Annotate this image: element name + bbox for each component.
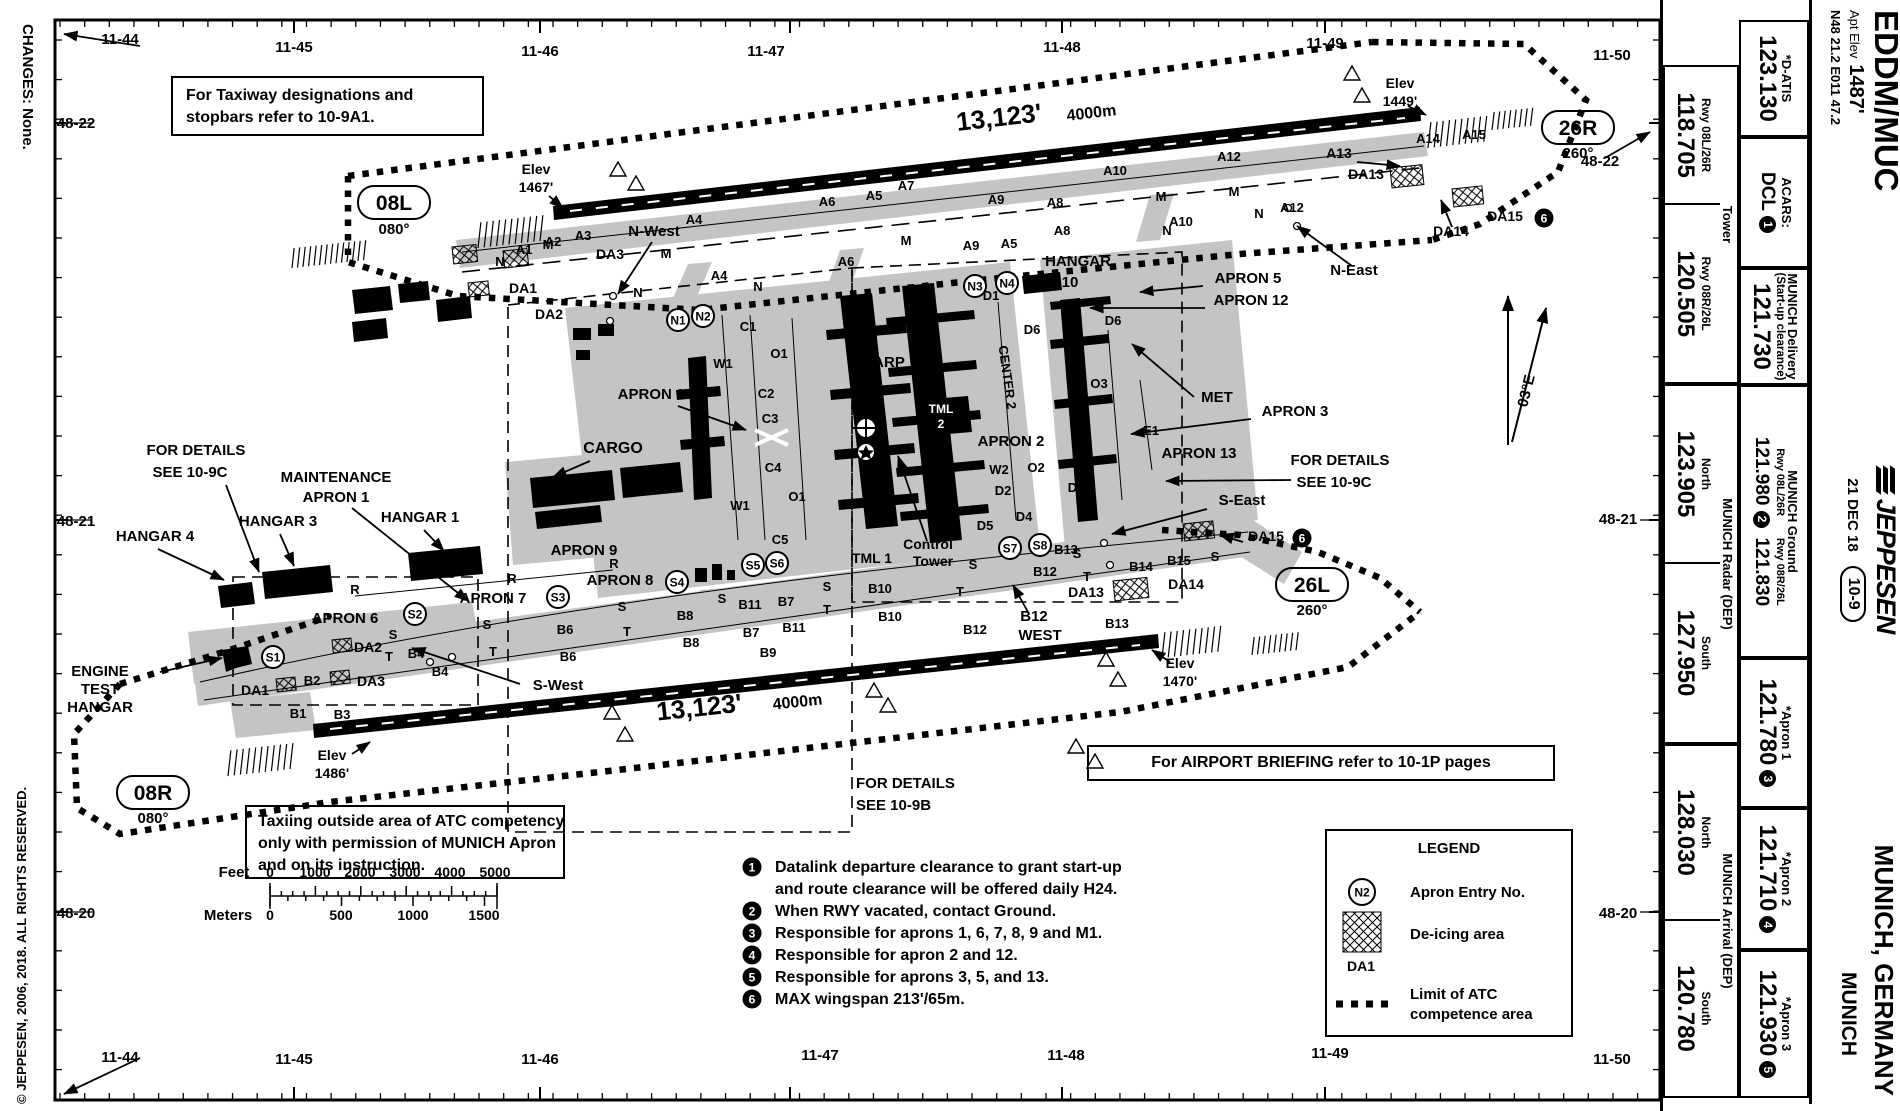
map-label: N — [1162, 223, 1171, 238]
map-label: A5 — [866, 188, 883, 203]
legend-deicing-sample — [1343, 912, 1381, 952]
map-label: B2 — [304, 673, 321, 688]
apron-entry-s6: S6 — [770, 557, 785, 571]
map-label: Elev — [318, 747, 347, 763]
freq-sublabel: North — [1700, 458, 1714, 490]
freq-label: ACARS: — [1780, 177, 1793, 228]
map-label: 4000m — [772, 691, 823, 713]
airport-diagram: N1N2N3N4S1S2S3S4S5S6S7S8N2 66 1Datalink … — [0, 0, 1660, 1111]
map-label: 1470' — [1163, 673, 1197, 689]
map-label: 10 — [1062, 274, 1079, 291]
brand-block: JEPPESEN 21 DEC 18 10-9 — [1840, 385, 1900, 715]
apron-entry-n2: N2 — [695, 310, 711, 324]
apt-elev-label: Apt Elev — [1847, 10, 1862, 58]
map-label: 3000 — [389, 864, 420, 880]
map-label: A9 — [988, 192, 1005, 207]
map-label: B4 — [432, 664, 449, 679]
chart-note-line: Datalink departure clearance to grant st… — [775, 859, 1122, 876]
map-label: APRON 1 — [303, 489, 370, 506]
freq-value: 128.030 — [1672, 789, 1700, 876]
map-label: HANGAR 3 — [239, 513, 317, 530]
map-label: S-East — [1219, 492, 1266, 509]
apron-entry-s7: S7 — [1003, 542, 1018, 556]
freq-sublabel: Rwy 08R/26L — [1700, 257, 1714, 331]
freq-cell-munich-delivery: MUNICH Delivery(Start-up clearance)121.7… — [1739, 268, 1809, 385]
freq-group-label: MUNICH Radar (DEP) — [1720, 386, 1734, 742]
apt-elev-value: 1487' — [1845, 64, 1867, 113]
map-label: DA3 — [596, 246, 624, 262]
freq-value: 118.705 — [1672, 92, 1700, 177]
chart-note-line: Responsible for aprons 1, 6, 7, 8, 9 and… — [775, 925, 1102, 942]
map-label: MET — [1201, 389, 1233, 406]
map-label: 03°E — [1514, 373, 1538, 409]
freq-cell--apron-2: *Apron 2121.7104 — [1739, 808, 1809, 950]
airport-coordinates: N48 21.2 E011 47.2 — [1828, 10, 1843, 275]
map-label: De-icing area — [1410, 926, 1505, 943]
spacer — [1739, 0, 1809, 20]
map-label: Meters — [204, 907, 252, 924]
map-label: only with permission of MUNICH Apron — [258, 835, 556, 852]
map-label: T — [623, 624, 631, 639]
map-label: B6 — [560, 649, 577, 664]
freq-value: 121.7104 — [1755, 825, 1780, 934]
map-label: S — [718, 591, 727, 606]
map-label: 4000m — [1066, 102, 1117, 125]
map-label: 11-44 — [101, 31, 139, 48]
map-label: B12 — [1020, 608, 1048, 625]
map-label: APRON 12 — [1213, 292, 1288, 309]
map-label: 48-21 — [57, 513, 95, 530]
map-label: FOR DETAILS — [1291, 452, 1390, 469]
map-label: C1 — [740, 319, 757, 334]
map-label: B8 — [683, 635, 700, 650]
map-label: HANGAR 1 — [381, 509, 459, 526]
map-label: W2 — [989, 462, 1009, 477]
map-label: competence area — [1410, 1006, 1533, 1023]
map-label: S — [823, 579, 832, 594]
map-label: S — [389, 627, 398, 642]
map-label: S — [969, 557, 978, 572]
map-label: Feet — [219, 864, 250, 881]
freq-group-munich-arrival-dep-: MUNICH Arrival (DEP)North128.030South120… — [1663, 744, 1739, 1098]
map-label: 2 — [938, 417, 945, 431]
map-label: B10 — [878, 609, 902, 624]
note-badge-6: 6 — [749, 992, 756, 1006]
freq-cell--apron-1: *Apron 1121.7803 — [1739, 658, 1809, 808]
map-label: N-West — [628, 223, 679, 240]
freq-pair: Rwy 08L/26R121.9802 — [1749, 437, 1786, 528]
jeppesen-airport-chart-page: { "margin": { "changes": "CHANGES: None.… — [0, 0, 1900, 1111]
map-label: APRON 2 — [978, 433, 1045, 450]
map-label: A2 — [545, 234, 562, 249]
map-label: D6 — [1024, 322, 1041, 337]
map-label: 11-48 — [1047, 1047, 1085, 1064]
map-label: 260° — [1562, 145, 1593, 162]
map-label: APRON 7 — [460, 590, 527, 607]
map-label: MAINTENANCE — [281, 469, 392, 486]
freq-value: 121.9305 — [1755, 970, 1780, 1079]
map-label: R — [507, 571, 517, 586]
map-label: B11 — [782, 620, 805, 635]
freq-cell-rwy-08r-26l: Rwy 08R/26L120.505 — [1665, 203, 1720, 382]
map-label: A6 — [819, 194, 836, 209]
map-label: A10 — [1103, 163, 1127, 178]
map-label: APRON 8 — [587, 572, 654, 589]
freq-value: 120.505 — [1672, 250, 1700, 337]
freq-label: *Apron 1 — [1780, 706, 1793, 760]
map-label: TML — [929, 402, 954, 416]
map-label: APRON 3 — [1262, 403, 1329, 420]
map-label: DA2 — [535, 306, 563, 322]
apron-entry-s8: S8 — [1033, 539, 1048, 553]
apron-entry-s2: S2 — [408, 608, 423, 622]
map-label: T — [823, 602, 831, 617]
map-label: CARGO — [583, 440, 643, 457]
map-label: Elev — [1166, 655, 1195, 671]
map-label: 1467' — [519, 179, 553, 195]
freq-sublabel: Rwy 08L/26R — [1700, 98, 1714, 172]
freq-label: MUNICH Delivery — [1786, 273, 1799, 379]
map-label: C5 — [772, 532, 789, 547]
map-label: A10 — [1169, 214, 1193, 229]
runway-id-26r: 26R — [1559, 117, 1598, 140]
apron-entry-s1: S1 — [266, 651, 281, 665]
map-label: S-West — [533, 677, 584, 694]
map-label: SEE 10-9C — [1296, 474, 1371, 491]
map-label: TEST — [81, 681, 119, 698]
chart-date: 21 DEC 18 — [1845, 478, 1862, 551]
freq-value: 121.830 — [1749, 538, 1774, 607]
map-label: B7 — [743, 625, 760, 640]
map-label: B13 — [1105, 616, 1129, 631]
freq-label: *Apron 2 — [1780, 852, 1793, 906]
map-label: Elev — [1386, 75, 1415, 91]
map-label: A1 — [516, 242, 533, 257]
map-label: B6 — [557, 622, 574, 637]
map-label: 48-21 — [1599, 511, 1637, 528]
map-label: 48-20 — [57, 905, 95, 922]
map-label: 11-44 — [101, 1049, 139, 1066]
map-label: Control — [903, 536, 953, 552]
map-label: S — [1073, 546, 1082, 561]
map-label: C4 — [765, 460, 782, 475]
map-label: DA13 — [1068, 584, 1104, 600]
map-label: A9 — [963, 238, 980, 253]
map-label: A4 — [686, 212, 703, 227]
map-label: 0 — [266, 864, 274, 880]
map-label: HANGAR 4 — [116, 528, 195, 545]
freq-sublabel: South — [1700, 992, 1714, 1026]
freq-cell-rwy-08l-26r: Rwy 08L/26R118.705 — [1665, 67, 1720, 203]
map-label: T — [956, 584, 964, 599]
map-label: APRON 6 — [312, 610, 379, 627]
map-label: N — [633, 285, 642, 300]
freq-sublabel: Rwy 08R/26L — [1774, 538, 1786, 606]
map-label: B14 — [1129, 559, 1154, 574]
map-label: HANGAR — [1045, 253, 1111, 270]
map-label: A8 — [1054, 223, 1071, 238]
map-label: 1000 — [397, 907, 428, 923]
freq-value: 121.730 — [1749, 283, 1774, 370]
map-label: B3 — [334, 707, 351, 722]
map-label: B10 — [868, 581, 892, 596]
map-label: N — [1254, 206, 1263, 221]
map-label: ARP — [873, 354, 905, 371]
note-badge-6: 6 — [1541, 211, 1548, 225]
runway-id-26l: 26L — [1294, 574, 1330, 597]
freq-cell-north: North128.030 — [1665, 746, 1720, 919]
chart-note-line: Responsible for apron 2 and 12. — [775, 947, 1018, 964]
north-arrows — [1508, 296, 1546, 445]
map-label: stopbars refer to 10-9A1. — [186, 109, 375, 126]
map-label: 260° — [1296, 602, 1327, 619]
map-label: A12 — [1217, 149, 1241, 164]
map-label: DA2 — [354, 639, 382, 655]
map-label: 500 — [329, 907, 353, 923]
freq-value: 127.950 — [1672, 610, 1700, 697]
map-label: 080° — [378, 221, 409, 238]
freq-cell--d-atis: *D-ATIS123.130 — [1739, 20, 1809, 137]
map-label: A4 — [711, 268, 728, 283]
map-label: C2 — [758, 386, 775, 401]
note-badge-5: 5 — [1759, 1061, 1776, 1078]
map-label: B12 — [1033, 564, 1057, 579]
chart-note-line: MAX wingspan 213'/65m. — [775, 991, 965, 1008]
spacer — [1663, 0, 1739, 65]
city-country: MUNICH, GERMANY — [1868, 766, 1899, 1096]
map-label: A12 — [1280, 200, 1304, 215]
map-label: 1486' — [315, 765, 349, 781]
map-label: W1 — [730, 498, 750, 513]
freq-pair: Rwy 08R/26L121.830 — [1749, 538, 1786, 607]
map-label: M — [901, 233, 912, 248]
map-label: DA1 — [241, 682, 269, 698]
map-label: 11-47 — [747, 43, 785, 60]
map-label: T — [1083, 569, 1091, 584]
map-label: For Taxiway designations and — [186, 87, 413, 104]
map-label: TML 1 — [852, 550, 892, 566]
freq-value: 121.7803 — [1755, 679, 1780, 788]
map-label: B1 — [290, 706, 307, 721]
freq-group-munich-radar-dep-: MUNICH Radar (DEP)North123.905South127.9… — [1663, 384, 1739, 744]
map-label: S — [1211, 549, 1220, 564]
map-label: 11-49 — [1306, 35, 1344, 52]
freq-value: 123.130 — [1755, 35, 1780, 122]
map-label: 080° — [137, 810, 168, 827]
map-label: ENGINE — [71, 663, 129, 680]
freq-value: 123.905 — [1672, 431, 1700, 518]
map-label: 11-46 — [521, 1051, 559, 1068]
map-label: 1000 — [299, 864, 330, 880]
apron-entry-n4: N4 — [999, 277, 1015, 291]
map-label: DA14 — [1168, 576, 1204, 592]
map-label: D5 — [977, 518, 994, 533]
freq-sublabel: North — [1700, 817, 1714, 849]
freq-value: 121.9802 — [1749, 437, 1774, 528]
map-label: For AIRPORT BRIEFING refer to 10-1P page… — [1151, 754, 1491, 771]
runway-length-north: 13,123' — [955, 97, 1044, 137]
freq-sublabel: Rwy 08L/26R — [1774, 448, 1786, 516]
note-badge-1: 1 — [749, 860, 756, 874]
note-badge-5: 5 — [749, 970, 756, 984]
map-label: 5000 — [479, 864, 510, 880]
map-label: O2 — [1027, 460, 1044, 475]
map-label: B4 — [408, 646, 425, 661]
map-label: A6 — [838, 254, 855, 269]
map-label: T — [489, 644, 497, 659]
chart-notes: 1Datalink departure clearance to grant s… — [743, 858, 1122, 1009]
map-label: M — [661, 246, 672, 261]
map-label: B8 — [677, 608, 694, 623]
map-label: R — [350, 582, 360, 597]
map-label: R — [609, 556, 619, 571]
map-label: Tower — [913, 553, 954, 569]
map-label: Taxiing outside area of ATC competency — [258, 813, 565, 830]
map-label: D6 — [1105, 313, 1122, 328]
map-label: A8 — [1047, 195, 1064, 210]
map-label: M — [1156, 189, 1167, 204]
apron-entry-n3: N3 — [967, 280, 983, 294]
map-label: FOR DETAILS — [856, 775, 955, 792]
apron-entry-n2: N2 — [1354, 886, 1370, 900]
map-label: DA15 — [1487, 208, 1523, 224]
map-label: W1 — [713, 356, 733, 371]
map-label: WEST — [1018, 627, 1061, 644]
map-label: B9 — [760, 645, 777, 660]
freq-cell-south: South120.780 — [1665, 919, 1720, 1096]
airport-title-block: EDDM/MUC Apt Elev1487' N48 21.2 E011 47.… — [1828, 10, 1900, 275]
map-label: O1 — [770, 346, 787, 361]
chart-note-line: Responsible for aprons 3, 5, and 13. — [775, 969, 1049, 986]
map-label: A13 — [1326, 145, 1352, 161]
freq-value: DCL1 — [1755, 172, 1780, 233]
map-label: A7 — [898, 178, 915, 193]
map-label: S — [483, 617, 492, 632]
map-label: APRON 13 — [1161, 445, 1236, 462]
map-label: DA15 — [1248, 528, 1284, 544]
map-label: 11-45 — [275, 1051, 313, 1068]
freq-cell-acars-: ACARS:DCL1 — [1739, 137, 1809, 268]
map-label: LEGEND — [1418, 840, 1481, 857]
map-label: D4 — [1016, 509, 1033, 524]
map-label: E1 — [1143, 423, 1159, 438]
airport-icao: EDDM/MUC — [1869, 10, 1900, 275]
map-label: M — [1229, 184, 1240, 199]
note-badge-2: 2 — [1753, 511, 1770, 528]
map-label: Elev — [522, 161, 551, 177]
map-label: APRON 5 — [1215, 270, 1282, 287]
map-label: 1449' — [1383, 93, 1417, 109]
map-label: C3 — [762, 411, 779, 426]
note-badge-4: 4 — [1759, 916, 1776, 933]
map-label: DA13 — [1348, 166, 1384, 182]
map-label: HANGAR — [67, 699, 133, 716]
map-label: S — [618, 599, 627, 614]
note-badge-1: 1 — [1759, 216, 1776, 233]
map-label: O3 — [1090, 376, 1107, 391]
apron-entry-n1: N1 — [670, 314, 686, 328]
note-badge-3: 3 — [1759, 770, 1776, 787]
map-label: DA3 — [357, 673, 385, 689]
map-label: A14 — [1416, 131, 1441, 146]
map-label: D2 — [995, 483, 1012, 498]
chart-index-number: 10-9 — [1840, 566, 1866, 622]
freq-group-label: MUNICH Arrival (DEP) — [1720, 746, 1734, 1096]
freq-cell-south: South127.950 — [1665, 562, 1720, 742]
map-label: 48-20 — [1599, 905, 1637, 922]
map-label: 11-47 — [801, 1047, 839, 1064]
map-label: APRON 9 — [551, 542, 618, 559]
map-label: B15 — [1167, 553, 1191, 568]
freq-cell-munich-ground: MUNICH GroundRwy 08L/26R121.9802Rwy 08R/… — [1739, 385, 1809, 658]
map-label: SEE 10-9B — [856, 797, 931, 814]
map-label: 11-48 — [1043, 39, 1081, 56]
runway-id-08r: 08R — [134, 782, 173, 805]
map-label: Apron Entry No. — [1410, 884, 1525, 901]
freq-label: MUNICH Ground — [1786, 470, 1799, 573]
info-sidebar: EDDM/MUC Apt Elev1487' N48 21.2 E011 47.… — [1660, 0, 1900, 1111]
jeppesen-swoosh-icon — [1874, 467, 1897, 493]
map-label: T — [385, 649, 393, 664]
map-label: DA14 — [1433, 223, 1469, 239]
map-label: A15 — [1462, 127, 1486, 142]
note-badge-3: 3 — [749, 926, 756, 940]
map-label: 11-50 — [1593, 1051, 1631, 1068]
map-label: B7 — [778, 594, 795, 609]
map-label: 4000 — [434, 864, 465, 880]
apron-entry-s3: S3 — [551, 591, 566, 605]
chart-note-line: When RWY vacated, contact Ground. — [775, 903, 1056, 920]
map-label: 11-46 — [521, 43, 559, 60]
map-label: DA1 — [509, 280, 537, 296]
map-label: 11-49 — [1311, 1045, 1349, 1062]
map-label: 1500 — [468, 907, 499, 923]
freq-cell-north: North123.905 — [1665, 386, 1720, 562]
map-label: N — [753, 279, 762, 294]
map-label: O1 — [788, 489, 805, 504]
map-label: A3 — [575, 228, 592, 243]
map-label: 11-45 — [275, 39, 313, 56]
freq-sublabel: (Start-up clearance) — [1774, 272, 1786, 380]
note-badge-2: 2 — [749, 904, 756, 918]
note-number-badges: 66 — [1293, 209, 1554, 548]
map-label: DA1 — [1347, 958, 1375, 974]
freq-group-tower: TowerRwy 08L/26R118.705Rwy 08R/26L120.50… — [1663, 65, 1739, 384]
map-label: A5 — [1001, 236, 1018, 251]
apron-entry-s5: S5 — [746, 559, 761, 573]
note-badge-6: 6 — [1299, 531, 1306, 545]
scale-bars — [270, 883, 497, 909]
chart-note-line: and route clearance will be offered dail… — [775, 881, 1117, 898]
freq-group-label: Tower — [1720, 67, 1734, 382]
freq-cell--apron-3: *Apron 3121.9305 — [1739, 950, 1809, 1098]
note-badge-4: 4 — [749, 948, 756, 962]
freq-label: *Apron 3 — [1780, 997, 1793, 1051]
city-block: MUNICH, GERMANY MUNICH — [1836, 766, 1900, 1096]
apron-entry-s4: S4 — [670, 576, 685, 590]
map-label: SEE 10-9C — [152, 464, 227, 481]
jeppesen-wordmark: JEPPESEN — [1870, 499, 1900, 634]
tower-frequency-row: TowerRwy 08L/26R118.705Rwy 08R/26L120.50… — [1663, 0, 1739, 1104]
map-label: B11 — [738, 597, 761, 612]
freq-value: 120.780 — [1672, 965, 1700, 1052]
chart-city-name: MUNICH — [1836, 766, 1860, 1056]
taxiway-designation-note-box — [172, 77, 483, 135]
map-label: N — [495, 254, 504, 269]
map-label: 48-22 — [57, 115, 95, 132]
map-label: 2000 — [344, 864, 375, 880]
delivery-frequency-row: *D-ATIS123.130ACARS:DCL1MUNICH Delivery(… — [1739, 0, 1809, 1104]
